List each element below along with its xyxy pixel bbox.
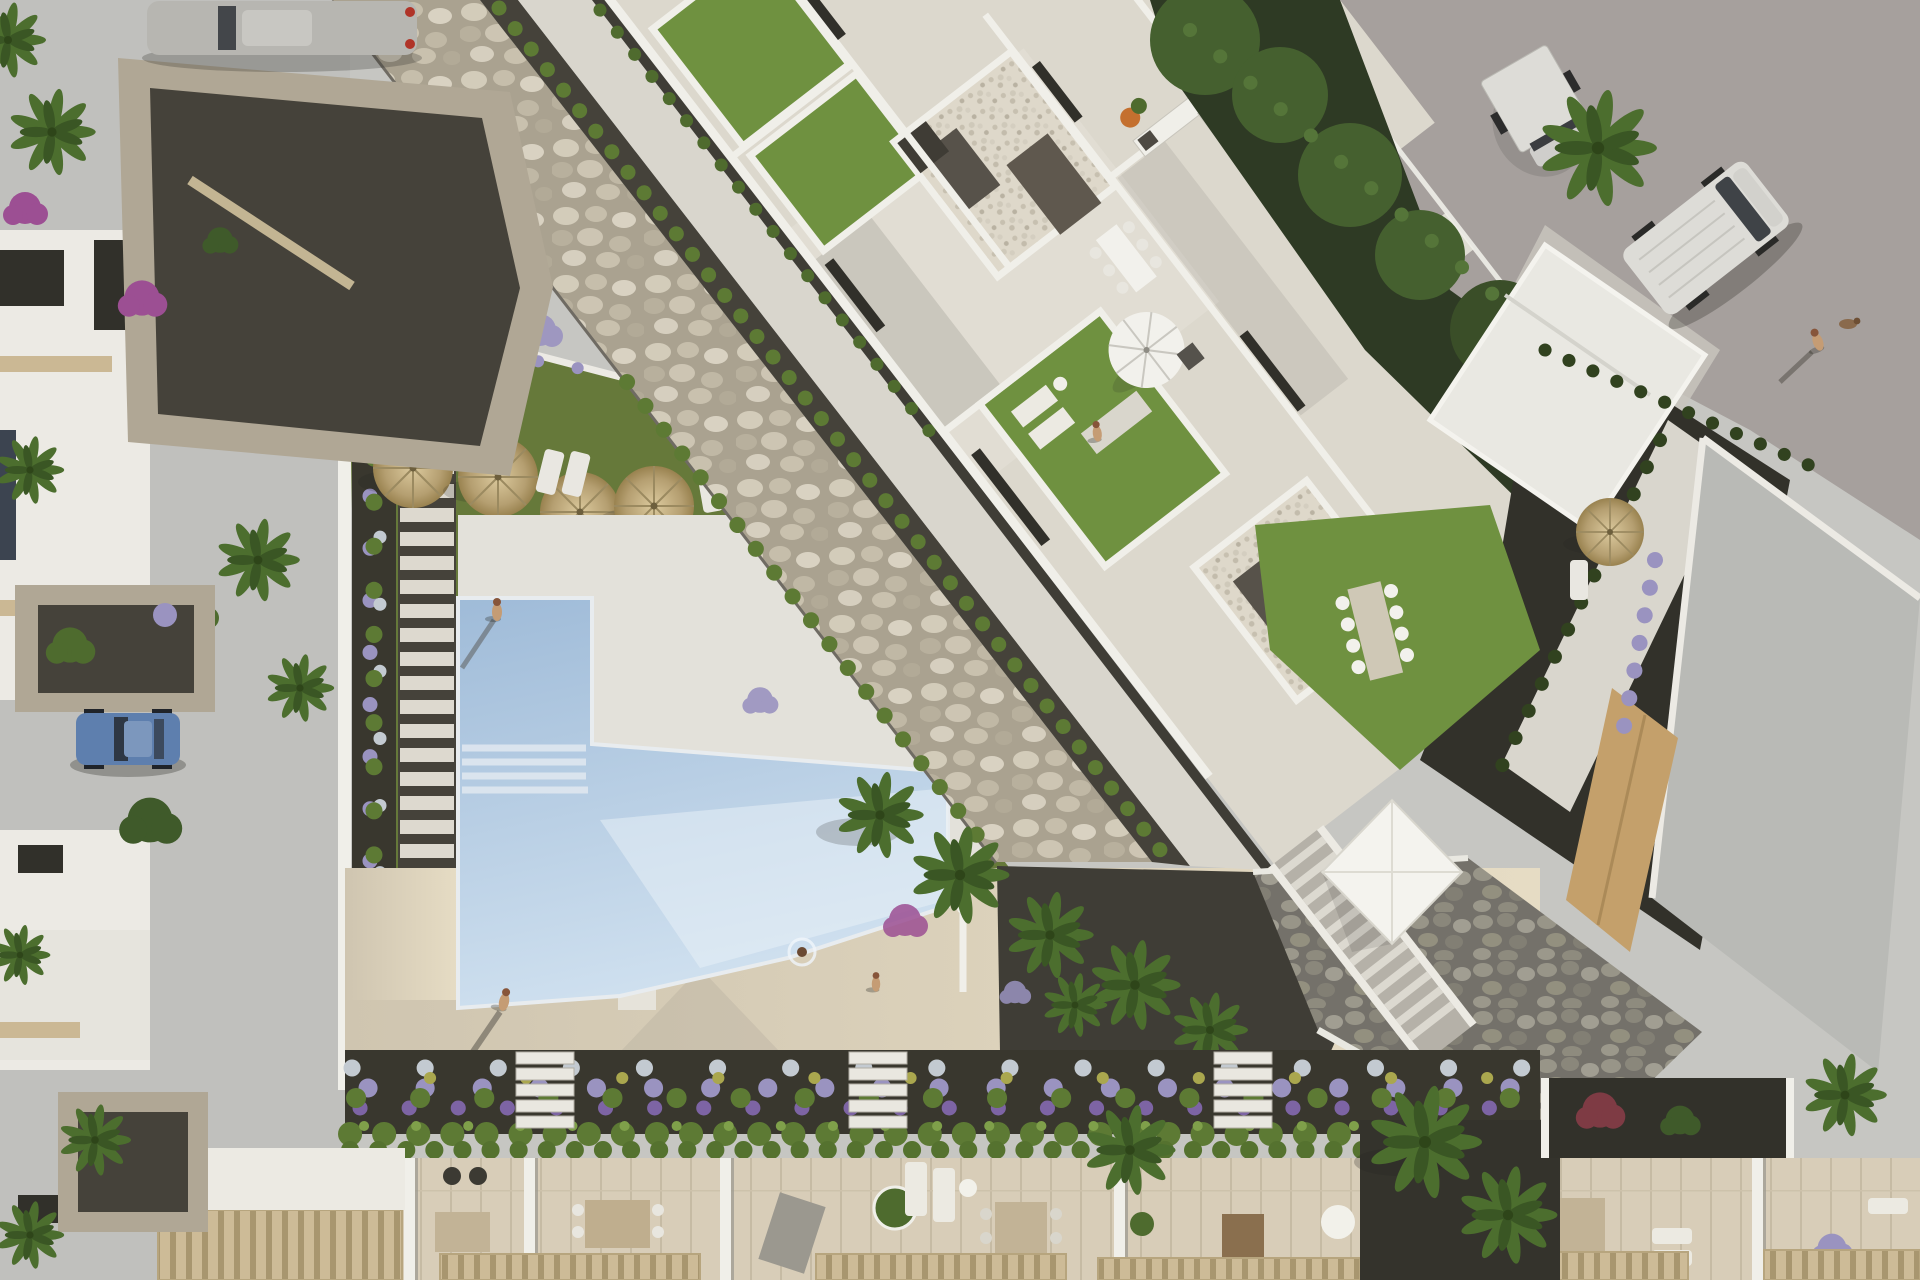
bed-steps: [849, 1052, 907, 1128]
dining-table: [435, 1212, 490, 1252]
bed-steps: [1214, 1052, 1272, 1128]
blue-car: [70, 709, 186, 777]
potted-plant: [1130, 1212, 1154, 1236]
bottom-terraces: [143, 1050, 1920, 1280]
silver-car: [142, 1, 422, 72]
sphere-lamp: [1321, 1205, 1355, 1239]
villa-lounger: [1570, 560, 1588, 600]
gravel-bed-top: [118, 58, 553, 476]
dining-table: [585, 1200, 650, 1248]
screenshot-root: Aerial top-down 3D render of a modern wh…: [0, 0, 1920, 1280]
gravel-bed-mid: [15, 585, 215, 712]
aerial-render: Aerial top-down 3D render of a modern wh…: [0, 0, 1920, 1280]
bed-steps: [516, 1052, 574, 1128]
